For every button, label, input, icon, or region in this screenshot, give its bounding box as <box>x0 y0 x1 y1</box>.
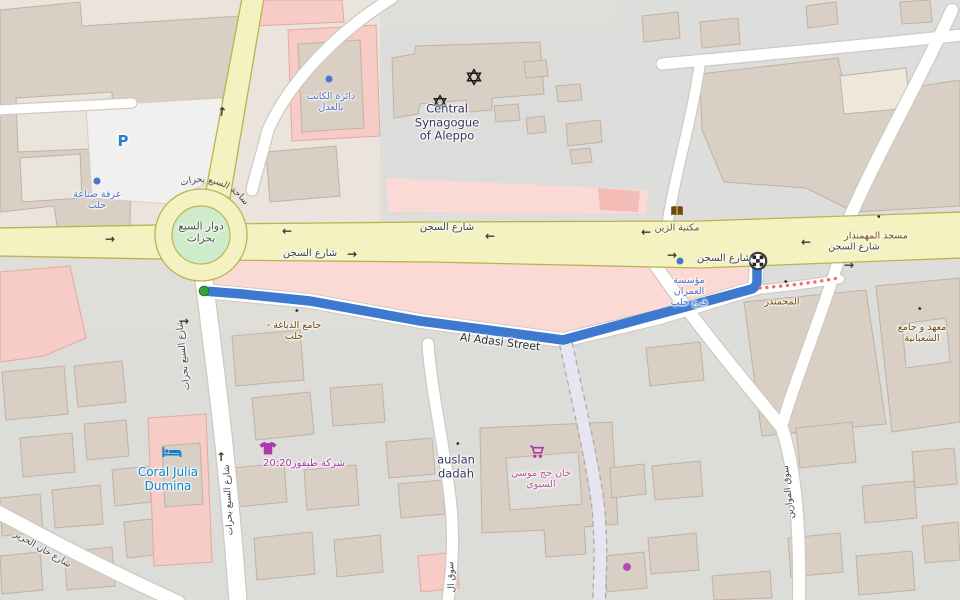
poi-dot <box>326 76 333 83</box>
map-base-layer: ساحة السبع بحرات <box>0 0 960 600</box>
poi-dot <box>94 178 101 185</box>
route-start-marker[interactable] <box>199 286 209 296</box>
route-end-marker[interactable] <box>750 253 766 269</box>
poi-dot <box>623 563 631 571</box>
map-canvas[interactable]: ساحة السبع بحرات دوار السبع بحرات شارع ا… <box>0 0 960 600</box>
poi-dot <box>677 258 684 265</box>
